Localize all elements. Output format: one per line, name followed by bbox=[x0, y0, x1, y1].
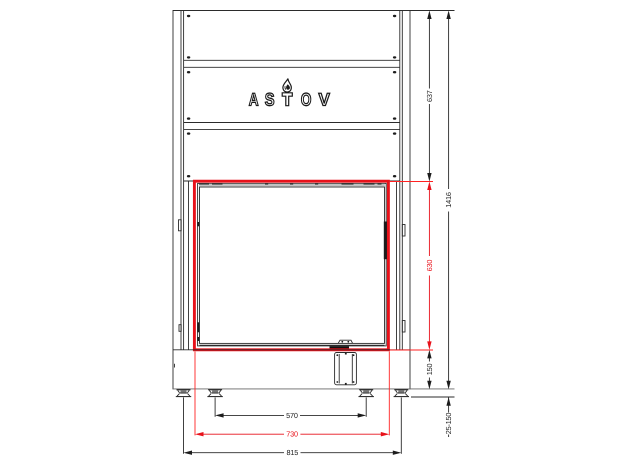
svg-text:570: 570 bbox=[286, 411, 298, 420]
svg-text:815: 815 bbox=[287, 448, 299, 457]
svg-text:730: 730 bbox=[286, 430, 298, 439]
svg-text:A: A bbox=[249, 90, 259, 110]
svg-text:S: S bbox=[265, 90, 275, 110]
svg-text:O: O bbox=[301, 90, 312, 110]
svg-text:V: V bbox=[319, 90, 331, 110]
svg-text:630: 630 bbox=[425, 260, 434, 272]
svg-text:150: 150 bbox=[425, 363, 434, 375]
svg-text:1416: 1416 bbox=[444, 192, 453, 208]
svg-text:637: 637 bbox=[425, 90, 434, 102]
svg-text:25-150: 25-150 bbox=[444, 413, 453, 435]
